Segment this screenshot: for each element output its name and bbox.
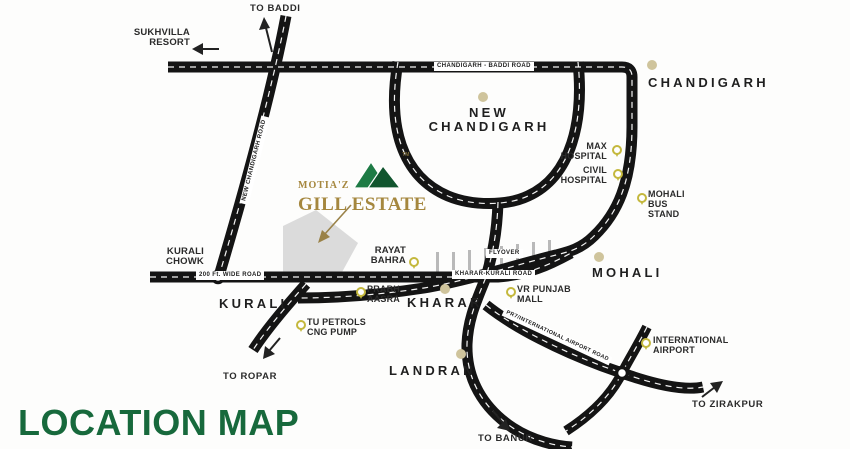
airport-road-junction [617,368,628,379]
direction-label-to-baddi: TO BADDI [250,4,301,14]
place-label-vr-punjab-mall: VR PUNJAB MALL [517,285,575,305]
to-baddi-arrow [259,17,272,52]
road-label-200ft-wide: 200 Ft. WIDE ROAD [196,271,264,280]
place-label-sukhvilla-resort: SUKHVILLA RESORT [128,28,190,49]
mountain-peaks-icon: TM [353,158,401,193]
logo-estate-text: GILL ESTATE [298,194,423,216]
vr-punjab-mall-pin-icon [506,287,516,297]
road-label-kharar-kurali: KHARAR-KURALI ROAD [452,270,535,279]
city-label-kharar: KHARAR [407,296,483,310]
international-airport-pin-icon [641,338,651,348]
place-label-kurali-chowk: KURALI CHOWK [162,247,204,268]
max-hospital-pin-icon [612,145,622,155]
place-label-civil-hospital: CIVIL HOSPITAL [557,166,607,186]
gill-estate-logo: MOTIA'Z TM GILL ESTATE [298,158,423,216]
place-label-prabh-aasra: PRABH AASRA [367,285,407,305]
road-label-chandigarh-baddi: CHANDIGARH - BADDI ROAD [434,62,534,71]
kharar-dot [440,284,450,294]
place-label-rayat-bahra: RAYAT BAHRA [366,246,406,267]
road-label-flyover: FLYOVER [486,249,523,258]
place-label-max-hospital: MAX HOSPITAL [557,142,607,162]
mohali-dot [594,252,604,262]
trademark-symbol: TM [402,152,409,158]
mohali-bus-stand-pin-icon [637,193,647,203]
direction-label-to-ropar: TO ROPAR [223,372,277,382]
city-label-new-chandigarh: NEW CHANDIGARH [424,106,554,135]
roads-layer [0,0,850,449]
logo-brand-text: MOTIA'Z [298,180,349,191]
sukhvilla-arrow [192,43,219,55]
city-label-mohali: MOHALI [592,266,662,280]
place-label-international-airport: INTERNATIONAL AIRPORT [653,336,737,356]
city-label-kurali: KURALI [219,297,287,311]
chandigarh-dot [647,60,657,70]
location-map: MOTIA'Z TM GILL ESTATE CHANDIGARH NEW CH… [0,0,850,449]
direction-label-to-zirakpur: TO ZIRAKPUR [692,400,763,410]
new-chandigarh-dot [478,92,488,102]
gill-estate-site-area [283,210,358,274]
road-new-chandigarh [219,16,286,276]
page-title: LOCATION MAP [18,402,299,444]
landran-dot [456,349,466,359]
to-zirakpur-arrow [702,381,723,397]
city-label-chandigarh: CHANDIGARH [648,76,769,90]
rayat-bahra-pin-icon [409,257,419,267]
direction-label-to-banur: TO BANUR [478,434,533,444]
place-label-tu-petrols: TU PETROLS CNG PUMP [307,318,369,338]
prabh-aasra-pin-icon [356,287,366,297]
tu-petrols-pin-icon [296,320,306,330]
city-label-landran: LANDRAN [389,364,476,378]
place-label-mohali-bus-stand: MOHALI BUS STAND [648,190,700,220]
civil-hospital-pin-icon [613,169,623,179]
